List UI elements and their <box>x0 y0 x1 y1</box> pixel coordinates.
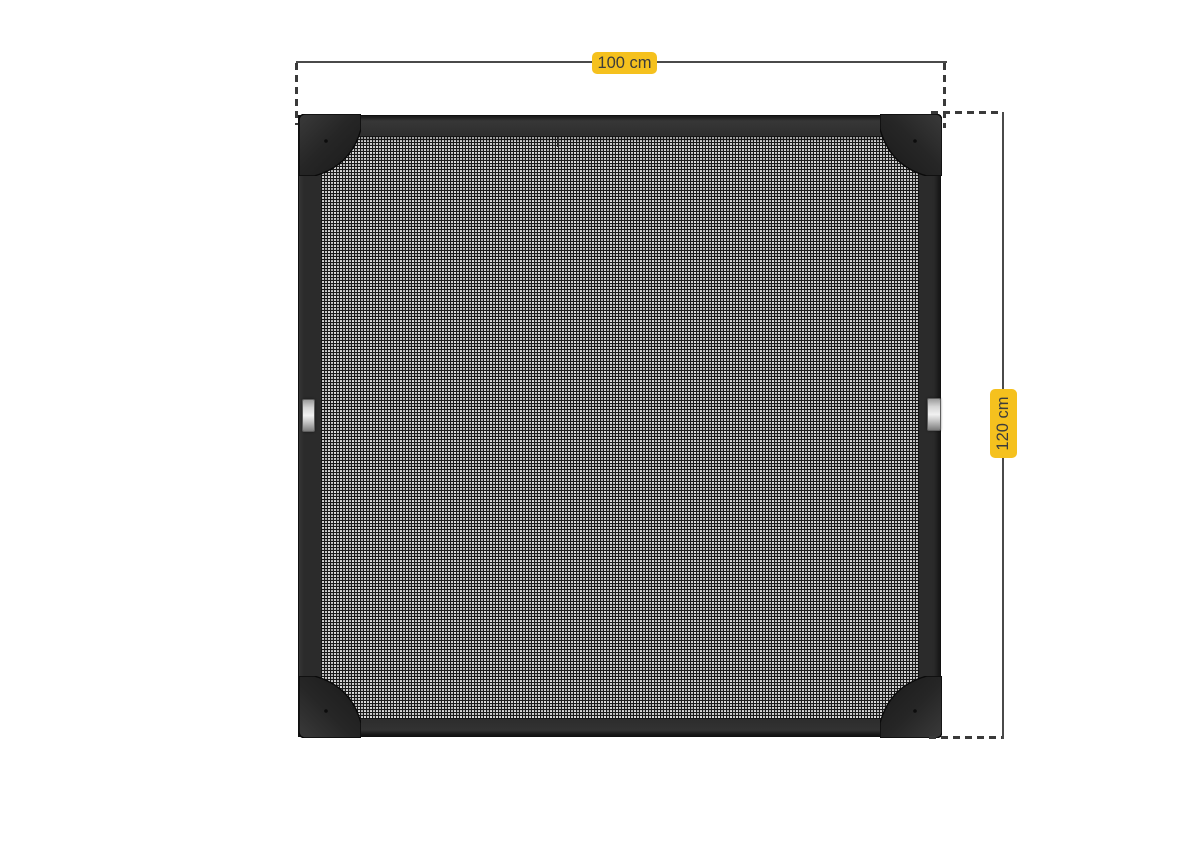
height-extension-line-bottom <box>929 736 1003 739</box>
corner-cap-top-left <box>299 114 361 176</box>
width-dimension-label: 100 cm <box>592 52 657 74</box>
corner-cap-top-right <box>880 114 942 176</box>
width-extension-line-right <box>943 63 946 128</box>
handle-left <box>302 399 315 432</box>
height-extension-line-top <box>931 111 1003 114</box>
mesh-seam-mark <box>557 137 559 147</box>
height-dimension-label: 120 cm <box>990 389 1017 458</box>
width-extension-line-left <box>295 63 298 125</box>
screen-mesh <box>321 136 919 719</box>
corner-cap-bottom-left <box>299 676 361 738</box>
product-diagram: 100 cm 120 cm <box>0 0 1200 848</box>
handle-right <box>927 398 941 431</box>
corner-cap-bottom-right <box>880 676 942 738</box>
screen-frame <box>298 115 941 737</box>
